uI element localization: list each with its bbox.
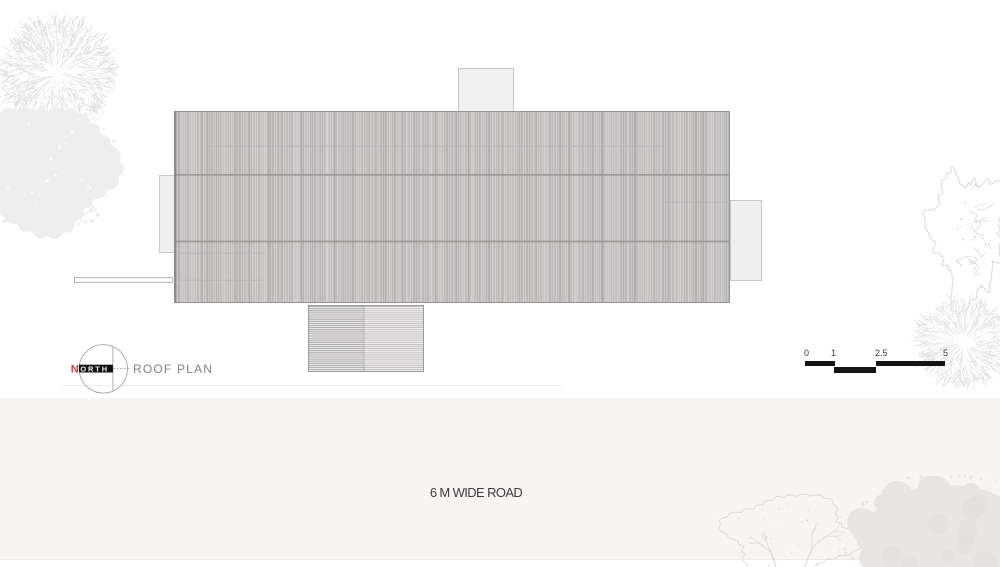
svg-text:N: N bbox=[71, 364, 79, 376]
svg-text:ORTH: ORTH bbox=[80, 365, 109, 374]
